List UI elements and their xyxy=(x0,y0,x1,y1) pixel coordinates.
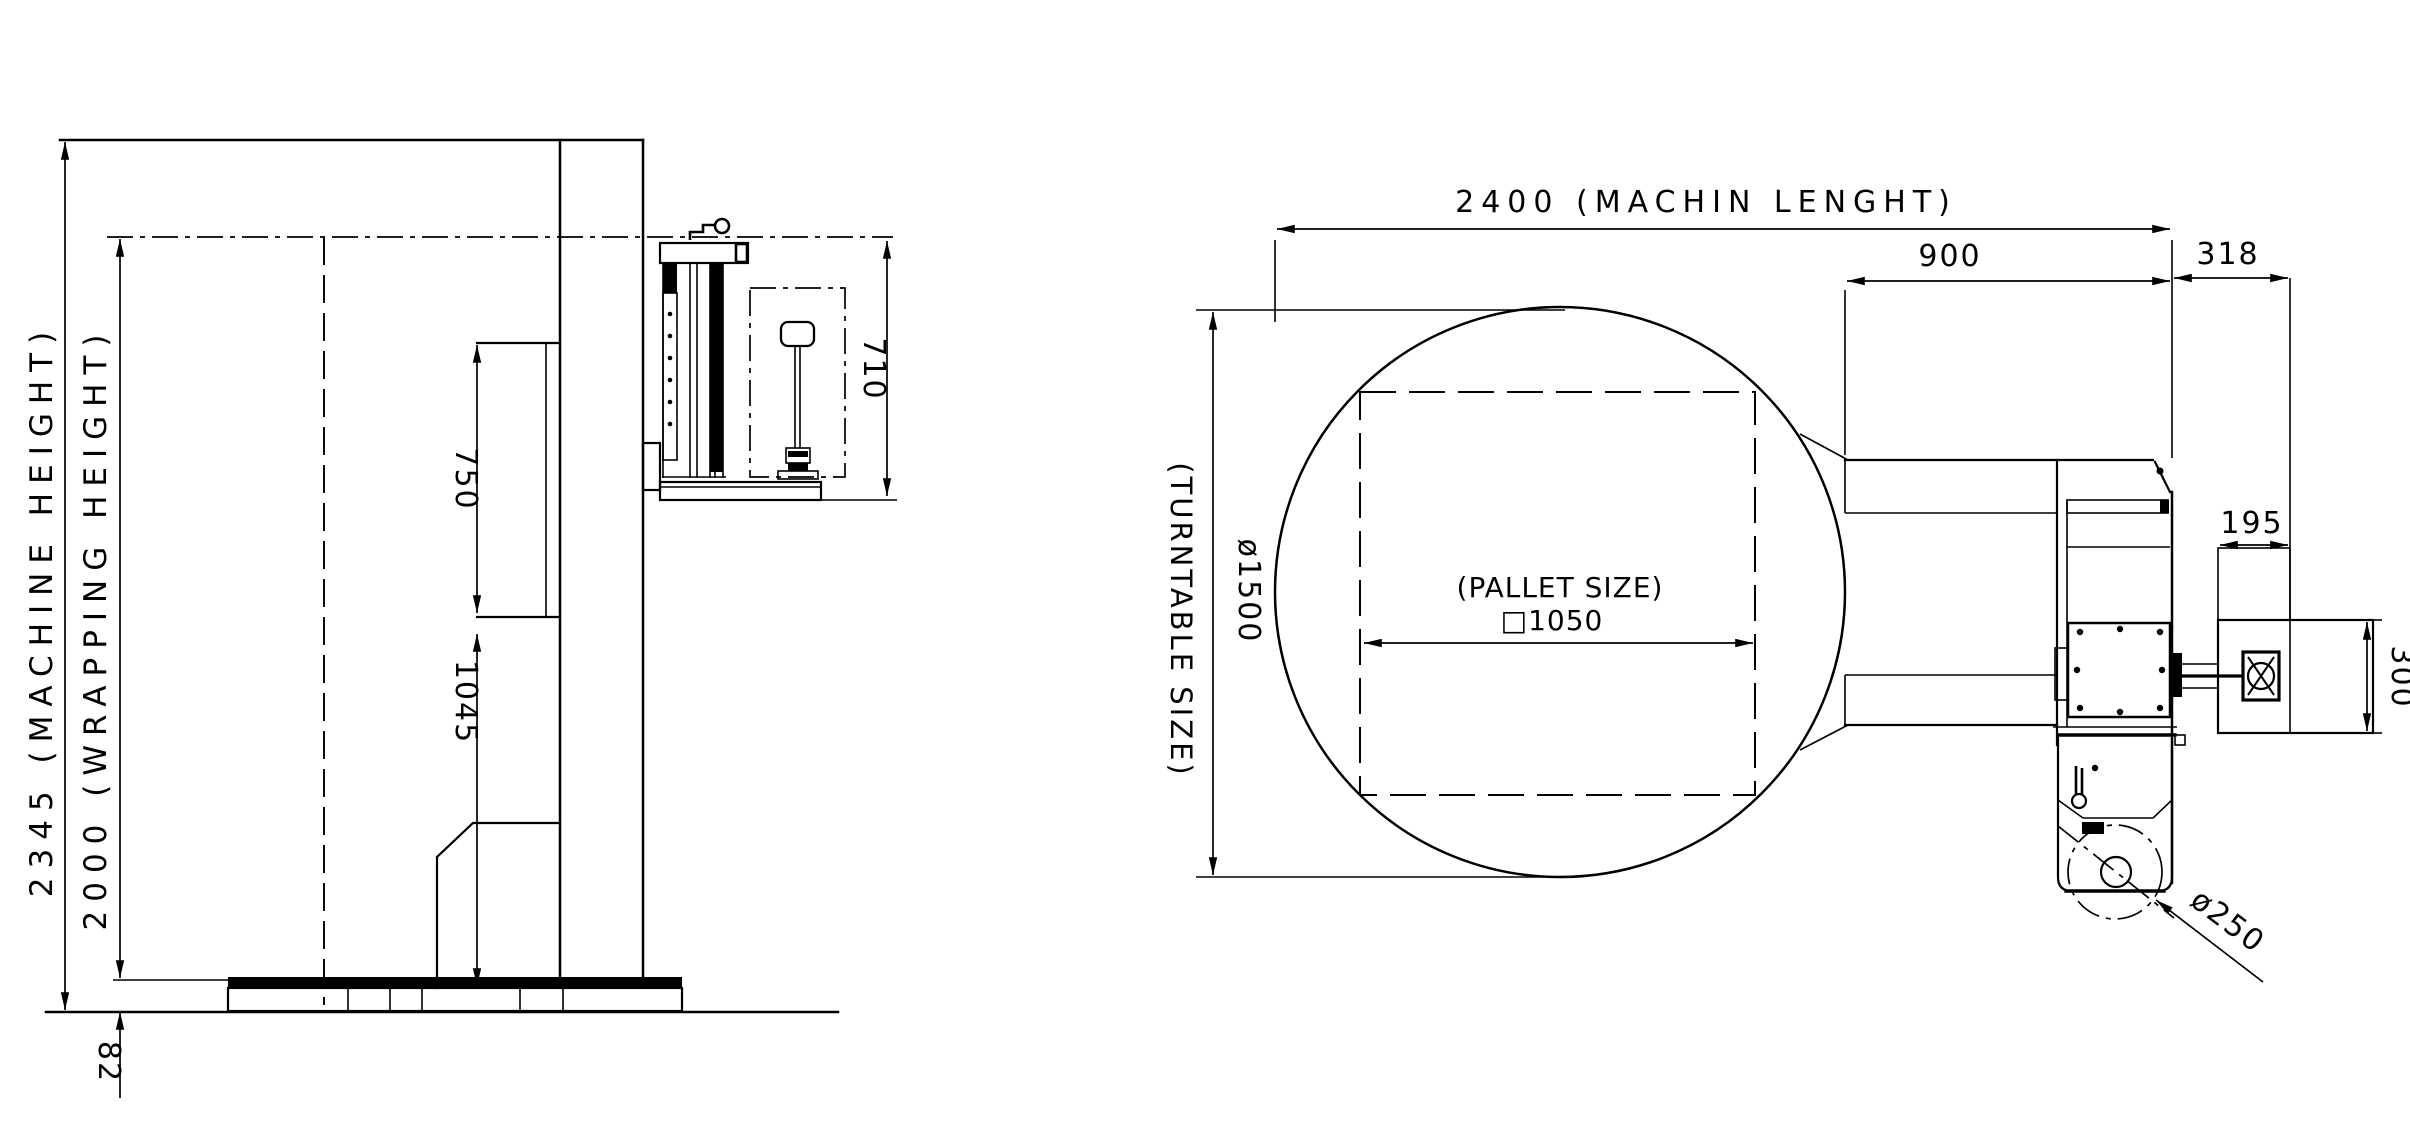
pallet-size-value: □1050 xyxy=(1501,604,1604,637)
column-housing xyxy=(2053,460,2177,883)
technical-drawing: 2345 (MACHINE HEIGHT) 2000 (WRAPPING HEI… xyxy=(0,0,2410,1122)
film-unit-housing xyxy=(2058,735,2185,919)
mast-section xyxy=(2068,623,2170,717)
dim-900-label: 900 xyxy=(1918,239,1981,274)
film-roll-core xyxy=(2101,857,2131,887)
side-view-dimensions: 2345 (MACHINE HEIGHT) 2000 (WRAPPING HEI… xyxy=(24,142,897,1098)
dim-750-label: 750 xyxy=(448,447,483,510)
drawing-sheet: 2345 (MACHINE HEIGHT) 2000 (WRAPPING HEI… xyxy=(0,0,2410,1122)
roll-coupling xyxy=(2243,652,2279,700)
gusset-top xyxy=(1800,434,1848,460)
dim-82-label: 82 xyxy=(91,1041,126,1083)
arm-stub xyxy=(2172,653,2182,697)
pallet-size-caption: (PALLET SIZE) xyxy=(1457,571,1664,604)
side-view: 2345 (MACHINE HEIGHT) 2000 (WRAPPING HEI… xyxy=(24,140,897,1098)
dim-300-label: 300 xyxy=(2384,645,2410,708)
chamfer-corner xyxy=(2155,462,2170,492)
gusset-bottom xyxy=(1800,725,1848,750)
turntable-plate xyxy=(228,977,682,987)
carriage-belt xyxy=(710,264,723,472)
side-view-structure xyxy=(46,140,893,1012)
turntable-size-label: (TURNTABLE SIZE) xyxy=(1164,462,1198,777)
machine-length-label: 2400 (MACHIN LENGHT) xyxy=(1455,185,1957,220)
film-box-upper xyxy=(2218,548,2290,620)
dim-1045-label: 1045 xyxy=(448,660,483,744)
film-roll-side xyxy=(778,322,818,479)
wrapping-height-label: 2000 (WRAPPING HEIGHT) xyxy=(78,326,114,931)
clamp-handle xyxy=(2072,794,2086,808)
roll-centerline xyxy=(2058,826,2174,918)
mast-base-bracket xyxy=(437,823,560,988)
plan-view-dimensions: 2400 (MACHIN LENGHT) 900 318 (TURNTABLE … xyxy=(1164,185,2410,982)
turntable-diameter-label: ø1500 xyxy=(1231,539,1266,644)
hook-ring xyxy=(715,219,729,233)
carriage-block xyxy=(663,264,677,293)
rail-cap xyxy=(2067,500,2168,513)
carriage-platform xyxy=(660,482,821,500)
dim-195-label: 195 xyxy=(2220,506,2283,541)
film-roll-circle xyxy=(2068,825,2162,919)
dim-710-label: 710 xyxy=(856,337,891,400)
dim-318-label: 318 xyxy=(2196,237,2259,272)
roll-diameter-label: ø250 xyxy=(2184,882,2272,960)
plan-view-structure xyxy=(1275,278,2373,919)
plan-view: 2400 (MACHIN LENGHT) 900 318 (TURNTABLE … xyxy=(1164,185,2410,982)
base-frame xyxy=(228,988,682,1011)
film-carriage xyxy=(643,219,845,500)
machine-height-label: 2345 (MACHINE HEIGHT) xyxy=(24,323,60,897)
